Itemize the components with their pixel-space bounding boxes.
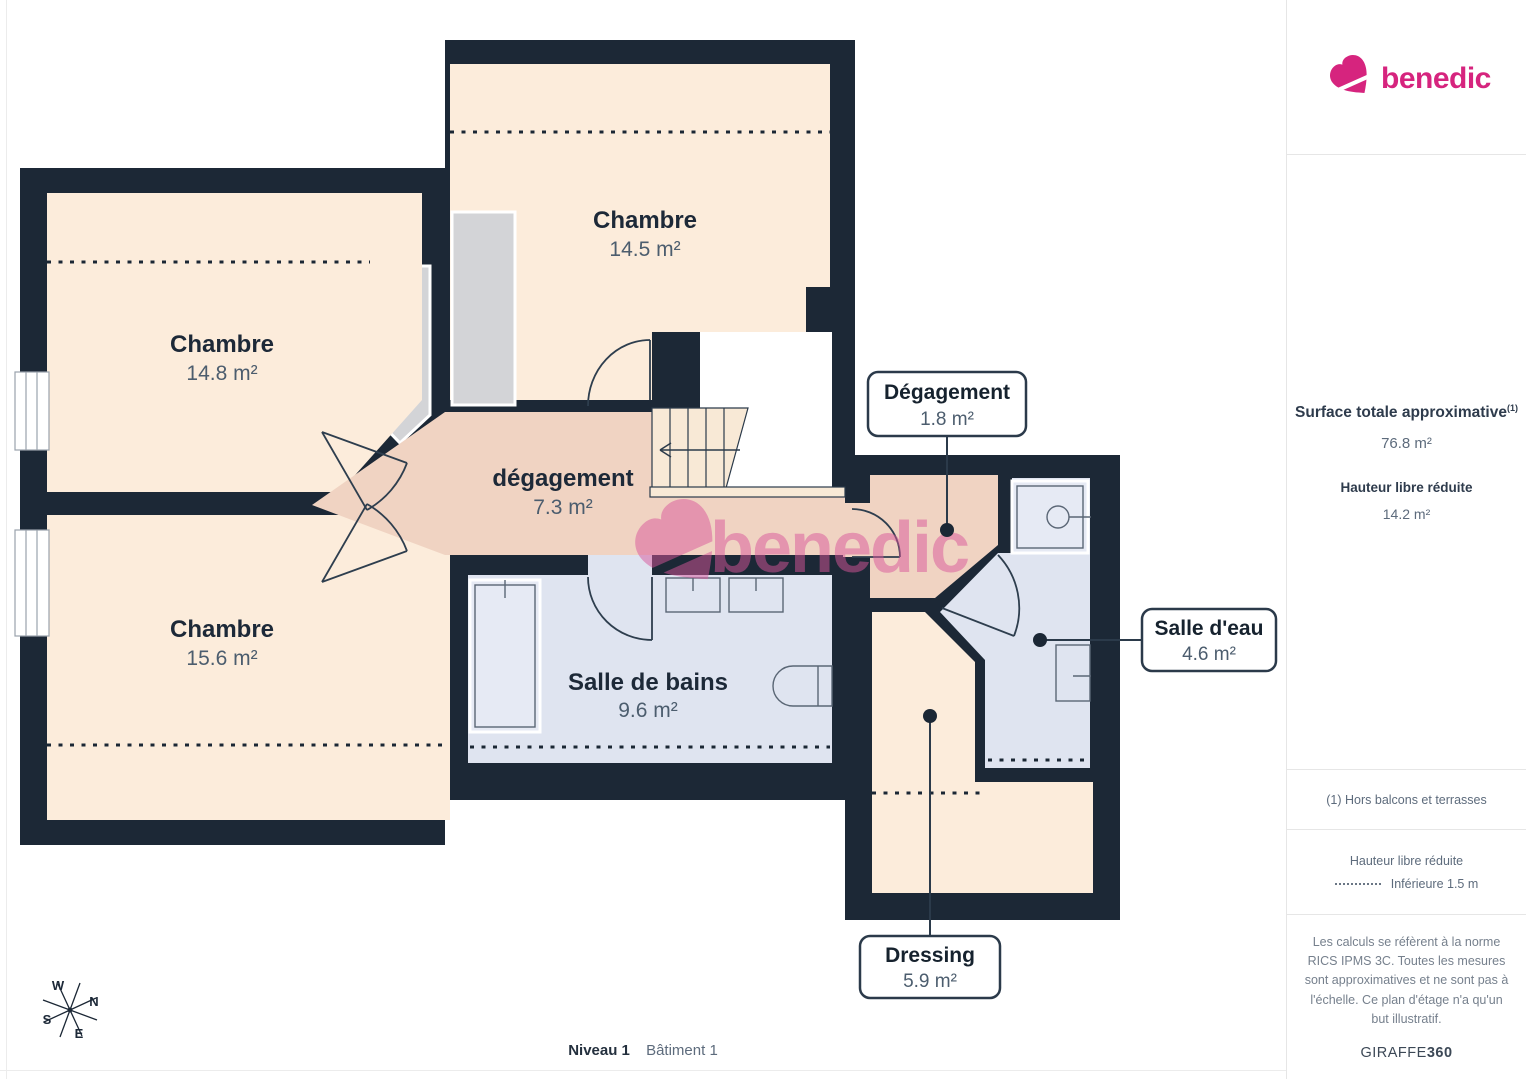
provider-logo: GIRAFFE360 [1360,1045,1452,1061]
room-label: Salle de bains [568,669,728,696]
room-label: Chambre [593,207,697,234]
level-label: Niveau 1 [568,1042,630,1059]
surface-total-title: Surface totale approximative(1) [1287,403,1526,422]
building-label: Bâtiment 1 [646,1042,718,1059]
provider-name: GIRAFFE [1360,1045,1426,1061]
callout-area: 5.9 m² [903,971,957,992]
info-sidebar: benedic Surface totale approximative(1) … [1286,0,1526,1079]
reduced-height-value: 14.2 m² [1287,506,1526,522]
floor-plan-svg: Chambre 14.5 m² Chambre 14.8 m² Chambre … [0,0,1286,1079]
callout-label: Salle d'eau [1155,617,1264,640]
room-area: 7.3 m² [533,496,593,519]
room-area: 15.6 m² [186,647,257,670]
surface-total-title-text: Surface totale approximative [1295,404,1507,421]
plan-area: Chambre 14.5 m² Chambre 14.8 m² Chambre … [0,0,1286,1079]
callout-area: 1.8 m² [920,409,974,430]
callout-label: Dressing [885,944,975,967]
compass-south: S [43,1012,52,1027]
shower-salle-deau [1012,481,1091,553]
window [15,530,49,636]
footnote-marker: (1) [1507,403,1518,413]
legend-row: Inférieure 1.5 m [1335,877,1479,891]
compass-west: W [52,978,65,993]
footnote-text: (1) Hors balcons et terrasses [1326,793,1486,807]
legend-title: Hauteur libre réduite [1350,854,1463,868]
brand-logo: benedic [1321,52,1493,102]
closet-top [452,212,515,405]
brand-logo-section: benedic [1287,0,1526,155]
plan-caption: Niveau 1 Bâtiment 1 [0,1042,1286,1059]
brand-logo-icon [1325,52,1379,102]
room-label: Chambre [170,616,274,643]
callout-area: 4.6 m² [1182,644,1236,665]
brand-logo-text: benedic [1381,62,1491,95]
room-label: Chambre [170,331,274,358]
disclaimer-text: Les calculs se réfèrent à la norme RICS … [1305,933,1509,1030]
dotted-line-icon [1335,883,1381,885]
compass-east: E [75,1026,84,1041]
room-area: 14.5 m² [609,238,680,261]
reduced-height-title: Hauteur libre réduite [1287,480,1526,495]
callout-label: Dégagement [884,381,1010,404]
watermark-text: benedic [710,508,968,588]
legend-section: Hauteur libre réduite Inférieure 1.5 m [1287,830,1526,915]
legend-item-text: Inférieure 1.5 m [1391,877,1479,891]
shower-salle-de-bains [470,580,540,732]
footnote-section: (1) Hors balcons et terrasses [1287,770,1526,830]
room-area: 9.6 m² [618,699,678,722]
floor-plan-page: Chambre 14.5 m² Chambre 14.8 m² Chambre … [0,0,1526,1079]
window [15,372,49,450]
surface-stats-section: Surface totale approximative(1) 76.8 m² … [1287,155,1526,770]
room-area: 14.8 m² [186,362,257,385]
provider-suffix: 360 [1427,1045,1453,1061]
room-label: dégagement [492,465,633,492]
compass-rose: W N S E [43,978,99,1041]
surface-total-value: 76.8 m² [1287,435,1526,452]
compass-north: N [89,994,98,1009]
legal-section: Les calculs se réfèrent à la norme RICS … [1287,915,1526,1079]
